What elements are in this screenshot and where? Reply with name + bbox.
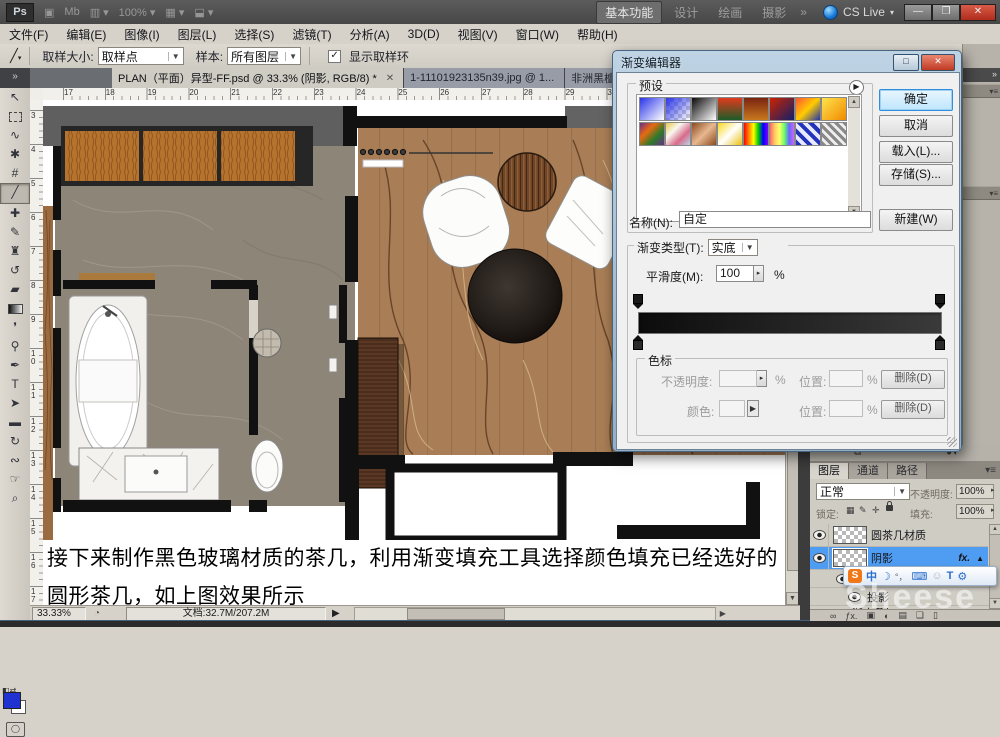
move-tool[interactable]: ↖ [1, 88, 29, 107]
tab-bar-spacer [30, 68, 112, 88]
layers-panel: ⧉ ◕◖ 图层通道路径▾≡ 正常▼ 不透明度: 100% ▸ 锁定: ▦ ✎ ✛… [800, 445, 1000, 620]
lock-all-icon[interactable] [886, 505, 893, 511]
gradient-preset-swatch-3[interactable] [691, 97, 717, 121]
ruler-number: 28 [524, 88, 533, 97]
visibility-eye-icon[interactable] [810, 524, 829, 546]
layer-thumbnail[interactable] [833, 549, 867, 567]
eyedropper-tool[interactable]: ╱ [0, 183, 30, 204]
toolbox-collapse-chevron[interactable]: » [0, 68, 30, 88]
fill-spinner-icon[interactable]: ▸ [991, 506, 995, 514]
3d-rotate-tool[interactable]: ↻ [1, 432, 29, 451]
menu-h[interactable]: 帮助(H) [568, 26, 627, 43]
stop-color-label: 颜色: [687, 403, 714, 420]
stop-location-label: 位置: [799, 403, 826, 420]
show-sampling-ring-label: 显示取样环 [349, 48, 409, 65]
restore-button[interactable]: ❐ [932, 4, 960, 21]
quick-selection-tool[interactable]: ✱ [1, 145, 29, 164]
stop-location-label: 位置: [799, 373, 826, 390]
ruler-number: 22 [273, 88, 282, 97]
ruler-number: 1 3 [31, 452, 35, 468]
smoothness-label: 平滑度(M): [646, 268, 703, 285]
name-label: 名称(N): [629, 214, 673, 231]
3d-orbit-tool[interactable]: ∾ [1, 451, 29, 470]
zoom-tool[interactable]: ⌕ [1, 489, 29, 508]
close-button[interactable]: ✕ [960, 4, 996, 21]
color-stop-right[interactable] [935, 335, 945, 350]
delete-color-stop-button[interactable]: 删除(D) [881, 400, 945, 419]
menu-bar: 文件(F)编辑(E)图像(I)图层(L)选择(S)滤镜(T)分析(A)3D(D)… [0, 24, 1000, 45]
gradient-preset-swatch-11[interactable] [691, 122, 717, 146]
percent-sign: % [774, 268, 785, 282]
ruler-number: 7 [31, 248, 35, 256]
ok-button[interactable]: 确定 [879, 89, 953, 111]
menu-e[interactable]: 编辑(E) [57, 26, 115, 43]
vertical-ruler[interactable]: 34567891 01 11 21 31 41 51 61 71 8 [30, 100, 44, 605]
layer-row-1[interactable]: 圆茶几材质 [810, 524, 988, 547]
menu-f[interactable]: 文件(F) [0, 26, 57, 43]
gradient-preset-swatch-16[interactable] [821, 122, 847, 146]
gradient-preset-swatch-10[interactable] [665, 122, 691, 146]
brush-tool[interactable]: ✎ [1, 223, 29, 242]
path-selection-tool[interactable]: ➤ [1, 394, 29, 413]
gradient-preset-swatch-13[interactable] [743, 122, 769, 146]
panel-tab-路径[interactable]: 路径 [888, 463, 927, 479]
document-tab-1[interactable]: PLAN（平面）异型-FF.psd @ 33.3% (阴影, RGB/8) *✕ [112, 68, 404, 88]
pen-tool[interactable]: ✒ [1, 356, 29, 375]
sample-dropdown[interactable]: 所有图层▼ [227, 47, 301, 65]
mini-bridge-icon[interactable]: Mb [64, 6, 79, 18]
dock-collapse-chevron[interactable]: » [963, 68, 1000, 82]
bridge-icon[interactable]: ▣ [44, 6, 54, 19]
panel-header[interactable]: ▾≡ [963, 186, 1000, 200]
gradient-preview-bar[interactable] [638, 312, 942, 334]
menu-i[interactable]: 图像(I) [115, 26, 168, 43]
load-button[interactable]: 载入(L)... [879, 141, 953, 163]
document-size-readout: 文档:32.7M/207.2M [126, 607, 326, 621]
layer-name: 投影 [867, 589, 889, 605]
dodge-tool[interactable]: ⚲ [1, 337, 29, 356]
hand-tool[interactable]: ☞ [1, 470, 29, 489]
rectangle-tool[interactable]: ▬ [1, 413, 29, 432]
gradient-preset-swatch-9[interactable] [639, 122, 665, 146]
stops-group: 色标 不透明度: ▸ % 位置: % 删除(D) 颜色: ▶ 位置: % 删除(… [636, 358, 948, 436]
ruler-number: 4 [31, 146, 35, 154]
zoom-percentage-field[interactable]: 33.33% [32, 607, 86, 621]
new-layer-icon[interactable]: ❏ [916, 610, 924, 621]
presets-menu-icon[interactable]: ▶ [849, 80, 864, 95]
window-controls: — ❐ ✕ [904, 4, 996, 21]
stop-color-swatch[interactable] [719, 400, 745, 417]
ruler-number: 26 [440, 88, 449, 97]
blend-mode-row: 正常▼ 不透明度: 100% ▸ [810, 481, 1000, 501]
eyedropper-tool-icon[interactable]: ╱▾ [10, 48, 21, 64]
menu-s[interactable]: 选择(S) [225, 26, 283, 43]
stop-location-input[interactable] [829, 370, 863, 387]
cancel-button[interactable]: 取消 [879, 115, 953, 137]
keyboard-icon[interactable]: ⌨ [911, 570, 927, 583]
ruler-number: 25 [398, 88, 407, 97]
dialog-restore-button[interactable]: □ [893, 54, 919, 71]
layer-row-4[interactable]: 投影 [810, 588, 1000, 606]
panel-header[interactable]: ▾≡ [963, 84, 1000, 98]
ruler-number: 1 4 [31, 486, 35, 502]
workspace-1[interactable]: 基本功能 [596, 1, 662, 24]
lock-label: 锁定: [816, 506, 839, 521]
punctuation-icon[interactable]: °， [895, 570, 908, 583]
blur-tool[interactable]: ❜ [1, 318, 29, 337]
ruler-number: 3 [31, 112, 35, 120]
gradient-preset-swatch-8[interactable] [821, 97, 847, 121]
cs-live-icon [823, 5, 838, 20]
toolbox: ↖∿✱#╱✚✎♜↺▰❜⚲✒T➤▬↻∾☞⌕ ◧⇄ ◯ [0, 88, 31, 626]
scroll-right-icon[interactable]: ▶ [720, 609, 726, 618]
ruler-number: 1 7 [31, 588, 35, 604]
zoom-level-control[interactable]: 100% ▾ [119, 6, 156, 19]
gradient-preset-swatch-1[interactable] [639, 97, 665, 121]
eraser-tool[interactable]: ▰ [1, 280, 29, 299]
document-tab-2[interactable]: 1-11101923135n39.jpg @ 1...✕ [404, 68, 565, 88]
sogou-ime-bar: S 中 ☽ °， ⌨ ☺ T ⚙ [843, 566, 997, 586]
ruler-number: 8 [31, 282, 35, 290]
ruler-number: 9 [31, 316, 35, 324]
ruler-number: 6 [31, 214, 35, 222]
skin-icon[interactable]: T [947, 570, 954, 582]
screen-mode-icon[interactable]: ⬓ ▾ [194, 6, 213, 19]
gradient-preset-swatch-7[interactable] [795, 97, 821, 121]
gradient-tool[interactable] [1, 299, 29, 318]
gradient-preset-swatch-4[interactable] [717, 97, 743, 121]
crop-tool[interactable]: # [1, 164, 29, 183]
clone-stamp-tool[interactable]: ♜ [1, 242, 29, 261]
chinese-mode-icon[interactable]: 中 [866, 568, 877, 584]
percent-sign: % [867, 373, 878, 387]
quick-mask-button[interactable]: ◯ [6, 722, 25, 737]
stop-opacity-spinner-icon[interactable]: ▸ [757, 370, 767, 387]
workspace-3[interactable]: 绘画 [710, 2, 750, 23]
blend-mode-dropdown[interactable]: 正常▼ [816, 483, 910, 500]
cs-live-button[interactable]: CS Live▾ [823, 5, 894, 20]
scroll-up-icon[interactable]: ▲ [848, 96, 860, 108]
layers-panel-footer: ∞ƒx.▣◐▤❏▯ [810, 609, 1000, 621]
scroll-down-icon[interactable]: ▼ [989, 598, 1000, 609]
ruler-number: 5 [31, 180, 35, 188]
opacity-spinner-icon[interactable]: ▸ [991, 486, 995, 494]
lock-position-icon[interactable]: ✛ [872, 505, 880, 516]
menu-a[interactable]: 分析(A) [341, 26, 399, 43]
options-separator [309, 47, 310, 65]
show-sampling-ring-checkbox[interactable]: ✓ [328, 50, 341, 63]
visibility-eye-icon[interactable] [810, 547, 829, 569]
lock-transparency-icon[interactable]: ▦ [846, 505, 855, 516]
panel-dock-strip: » ▾≡ ▾≡ [962, 44, 1000, 445]
arrange-documents-icon[interactable]: ▦ ▾ [165, 6, 184, 19]
menu-l[interactable]: 图层(L) [169, 26, 226, 43]
spot-healing-brush-tool[interactable]: ✚ [1, 204, 29, 223]
layer-name: 阴影 [871, 550, 893, 566]
gradient-type-row: 渐变类型(T): 实底▼ [634, 239, 788, 256]
ruler-number: 1 0 [31, 350, 35, 366]
save-button[interactable]: 存储(S)... [879, 164, 953, 186]
panel-tab-通道[interactable]: 通道 [849, 463, 888, 479]
workspace-2[interactable]: 设计 [666, 2, 706, 23]
color-flyout-icon[interactable]: ▶ [747, 400, 759, 417]
ruler-number: 29 [566, 88, 575, 97]
link-icon[interactable]: ∞ [830, 611, 836, 621]
fullmoon-mode-icon[interactable]: ☽ [881, 570, 891, 583]
panel-menu-icon[interactable]: ▾≡ [985, 463, 996, 479]
sample-size-label: 取样大小: [42, 48, 93, 65]
lasso-tool[interactable]: ∿ [1, 126, 29, 145]
type-tool[interactable]: T [1, 375, 29, 394]
ruler-number: 21 [231, 88, 240, 97]
layer-thumbnail[interactable] [833, 526, 867, 544]
percent-sign: % [867, 403, 878, 417]
options-separator [29, 47, 30, 65]
presets-label: 预设 [636, 77, 666, 94]
status-flyout-icon[interactable]: ▶ [332, 608, 340, 619]
opacity-label: 不透明度: [910, 486, 953, 501]
layer-name: 圆茶几材质 [871, 527, 926, 543]
gradient-type-label: 渐变类型(T): [637, 239, 704, 256]
close-tab-icon[interactable]: ✕ [383, 72, 397, 85]
ruler-number: 1 5 [31, 520, 35, 536]
smoothness-spinner-icon[interactable]: ▸ [754, 265, 764, 282]
gradient-type-dropdown[interactable]: 实底▼ [708, 239, 758, 256]
resize-grip[interactable] [947, 437, 957, 447]
smoothness-input[interactable]: 100 [716, 265, 754, 282]
tab-label: 1-11101923135n39.jpg @ 1... [410, 72, 554, 84]
gradient-preset-swatch-15[interactable] [795, 122, 821, 146]
gradient-editor-dialog[interactable]: 渐变编辑器 □ ✕ 预设 ▶ ▲ ▼ 确定 取消 载入(L)... 存储(S).… [612, 50, 962, 452]
ruler-number: 1 2 [31, 418, 35, 434]
stop-opacity-input[interactable] [719, 370, 757, 387]
toolbox-wrench-icon[interactable]: ⚙ [957, 570, 967, 583]
status-bar: 33.33% ◔ 文档:32.7M/207.2M ▶ ▶ [30, 605, 800, 621]
sogou-icon[interactable]: S [848, 569, 862, 583]
opacity-value[interactable]: 100% [956, 484, 994, 499]
ruler-number: 24 [357, 88, 366, 97]
preset-swatch-grid: ▲ ▼ [636, 94, 862, 222]
collapse-effects-icon[interactable]: ▲ [976, 554, 984, 563]
visibility-eye-icon[interactable] [848, 592, 861, 602]
opacity-stop-right[interactable] [935, 294, 945, 309]
workspace-4[interactable]: 摄影 [754, 2, 794, 23]
workspace-overflow-chevron[interactable]: » [800, 5, 807, 19]
tutorial-text-line1: 接下来制作黑色玻璃材质的茶几，利用渐变填充工具选择颜色填充已经选好的 [47, 542, 778, 572]
menu-w[interactable]: 窗口(W) [507, 26, 568, 43]
ruler-number: 1 1 [31, 384, 35, 400]
layer-mask-icon[interactable]: ▣ [866, 610, 875, 621]
dialog-close-icon[interactable]: ✕ [921, 54, 955, 71]
menu-t[interactable]: 滤镜(T) [283, 26, 340, 43]
fill-label: 填充: [910, 506, 933, 521]
delete-layer-icon[interactable]: ▯ [933, 610, 938, 621]
new-button[interactable]: 新建(W) [879, 209, 953, 231]
horizontal-scrollbar[interactable] [354, 607, 716, 621]
scroll-up-icon[interactable]: ▲ [989, 524, 1000, 535]
lock-pixels-icon[interactable]: ✎ [859, 505, 867, 516]
lock-row: 锁定: ▦ ✎ ✛ 填充: 100% ▸ [810, 503, 1000, 522]
layers-panel-tabs: 图层通道路径▾≡ [810, 461, 1000, 479]
photoshop-logo: Ps [6, 3, 34, 22]
gradient-preset-swatch-12[interactable] [717, 122, 743, 146]
sample-label: 样本: [196, 48, 223, 65]
percent-sign: % [775, 373, 786, 387]
stop-location-input[interactable] [829, 400, 863, 417]
rectangular-marquee-tool[interactable] [1, 107, 29, 126]
emoji-icon[interactable]: ☺ [931, 570, 942, 582]
gradient-preset-swatch-14[interactable] [769, 122, 795, 146]
stop-opacity-label: 不透明度: [661, 373, 712, 390]
ruler-number: 19 [148, 88, 157, 97]
menu-dd[interactable]: 3D(D) [399, 27, 449, 41]
gradient-preset-swatch-5[interactable] [743, 97, 769, 121]
status-clock-icon: ◔ [94, 608, 100, 619]
horizontal-scroll-thumb[interactable] [407, 608, 505, 620]
panel-tab-图层[interactable]: 图层 [810, 463, 849, 479]
ruler-number: 27 [482, 88, 491, 97]
layer-effects-fx-icon[interactable]: fx. [958, 553, 970, 564]
layout-picker-icon[interactable]: ▥ ▾ [90, 6, 109, 19]
group-icon[interactable]: ▤ [898, 610, 907, 621]
fill-value[interactable]: 100% [956, 504, 994, 519]
name-input[interactable]: 自定 [679, 211, 871, 228]
gradient-type-group: 渐变类型(T): 实底▼ 平滑度(M): 100 ▸ % 色标 不透明度: ▸ … [627, 245, 955, 443]
minimize-button[interactable]: — [904, 4, 932, 21]
delete-opacity-stop-button[interactable]: 删除(D) [881, 370, 945, 389]
gradient-preset-swatch-2[interactable] [665, 97, 691, 121]
layer-style-icon[interactable]: ƒx. [845, 611, 857, 621]
menu-v[interactable]: 视图(V) [449, 26, 507, 43]
workspace-switcher: 基本功能设计绘画摄影 [596, 1, 794, 24]
foreground-color-swatch[interactable] [3, 692, 21, 709]
opacity-stop-left[interactable] [633, 294, 643, 309]
ruler-number: 1 6 [31, 554, 35, 570]
dialog-body: 预设 ▶ ▲ ▼ 确定 取消 载入(L)... 存储(S)... 名称(N): … [616, 72, 960, 450]
ruler-number: 17 [64, 88, 73, 97]
color-stop-left[interactable] [633, 335, 643, 350]
adjustment-layer-icon[interactable]: ◐ [884, 611, 889, 621]
dialog-title: 渐变编辑器 [621, 54, 681, 71]
ruler-number: 20 [189, 88, 198, 97]
sample-size-dropdown[interactable]: 取样点▼ [98, 47, 184, 65]
app-title-bar: Ps ▣ Mb ▥ ▾ 100% ▾ ▦ ▾ ⬓ ▾ 基本功能设计绘画摄影 » … [0, 0, 1000, 24]
tab-label: PLAN（平面）异型-FF.psd @ 33.3% (阴影, RGB/8) * [118, 70, 377, 86]
tutorial-text-line2: 圆形茶几，如上图效果所示 [47, 580, 305, 605]
stops-label: 色标 [645, 352, 675, 369]
presets-scrollbar[interactable]: ▲ ▼ [848, 96, 860, 218]
history-brush-tool[interactable]: ↺ [1, 261, 29, 280]
ruler-number: 18 [106, 88, 115, 97]
gradient-preset-swatch-6[interactable] [769, 97, 795, 121]
ruler-number: 23 [315, 88, 324, 97]
